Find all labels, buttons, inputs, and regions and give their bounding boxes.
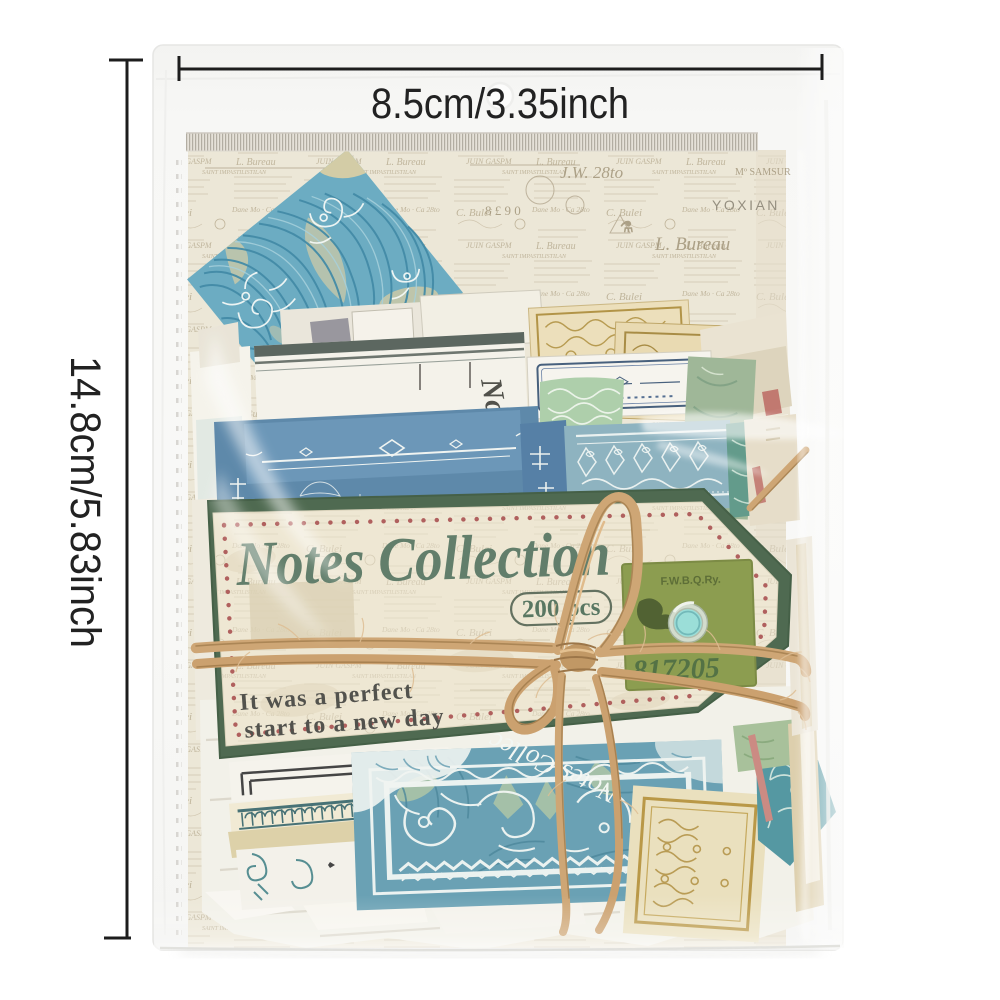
- svg-text:8.5cm/3.35inch: 8.5cm/3.35inch: [371, 80, 629, 128]
- svg-text:14.8cm/5.83inch: 14.8cm/5.83inch: [61, 356, 109, 648]
